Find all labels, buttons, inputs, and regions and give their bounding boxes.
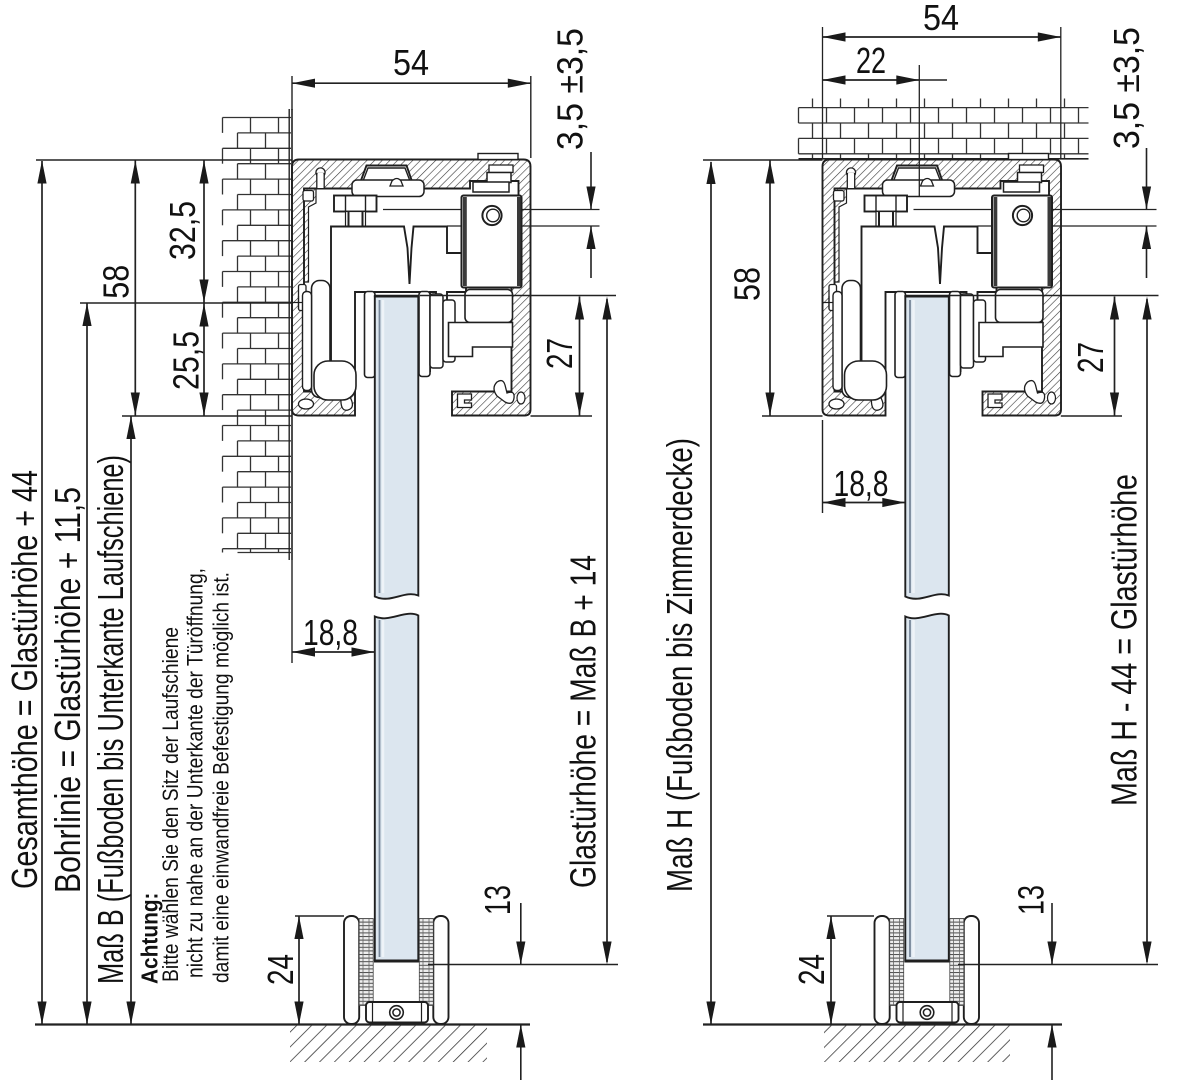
svg-text:24: 24: [791, 954, 832, 985]
svg-text:Maß B (Fußboden bis Unterkante: Maß B (Fußboden bis Unterkante Laufschie…: [90, 455, 131, 984]
svg-text:Gesamthöhe = Glastürhöhe + 44: Gesamthöhe = Glastürhöhe + 44: [4, 470, 45, 889]
svg-text:27: 27: [539, 338, 580, 369]
svg-text:Bohrlinie = Glastürhöhe + 11,5: Bohrlinie = Glastürhöhe + 11,5: [47, 487, 88, 893]
svg-text:22: 22: [856, 40, 886, 81]
svg-text:Bitte wählen Sie den Sitz der: Bitte wählen Sie den Sitz der Laufschien…: [158, 627, 183, 982]
svg-text:54: 54: [923, 0, 959, 38]
svg-text:damit eine einwandfreie Befest: damit eine einwandfreie Befestigung mögl…: [209, 572, 234, 983]
svg-text:13: 13: [477, 885, 518, 915]
svg-text:18,8: 18,8: [834, 463, 889, 504]
svg-text:24: 24: [260, 954, 301, 985]
svg-text:nicht zu nahe an der Unterkant: nicht zu nahe an der Unterkante der Türö…: [183, 568, 208, 978]
svg-text:18,8: 18,8: [303, 612, 358, 653]
svg-text:27: 27: [1070, 342, 1111, 373]
svg-text:Maß H (Fußboden bis Zimmerdeck: Maß H (Fußboden bis Zimmerdecke): [659, 438, 700, 892]
svg-text:54: 54: [393, 42, 429, 83]
svg-text:3,5 ±3,5: 3,5 ±3,5: [550, 28, 591, 150]
svg-text:3,5 ±3,5: 3,5 ±3,5: [1106, 27, 1147, 149]
svg-text:Glastürhöhe = Maß B + 14: Glastürhöhe = Maß B + 14: [563, 555, 604, 888]
svg-text:25,5: 25,5: [166, 331, 207, 390]
svg-text:Maß H - 44 = Glastürhöhe: Maß H - 44 = Glastürhöhe: [1104, 474, 1145, 806]
svg-text:32,5: 32,5: [162, 201, 203, 260]
svg-text:58: 58: [727, 267, 768, 301]
svg-text:13: 13: [1011, 885, 1052, 915]
svg-text:58: 58: [96, 265, 137, 299]
